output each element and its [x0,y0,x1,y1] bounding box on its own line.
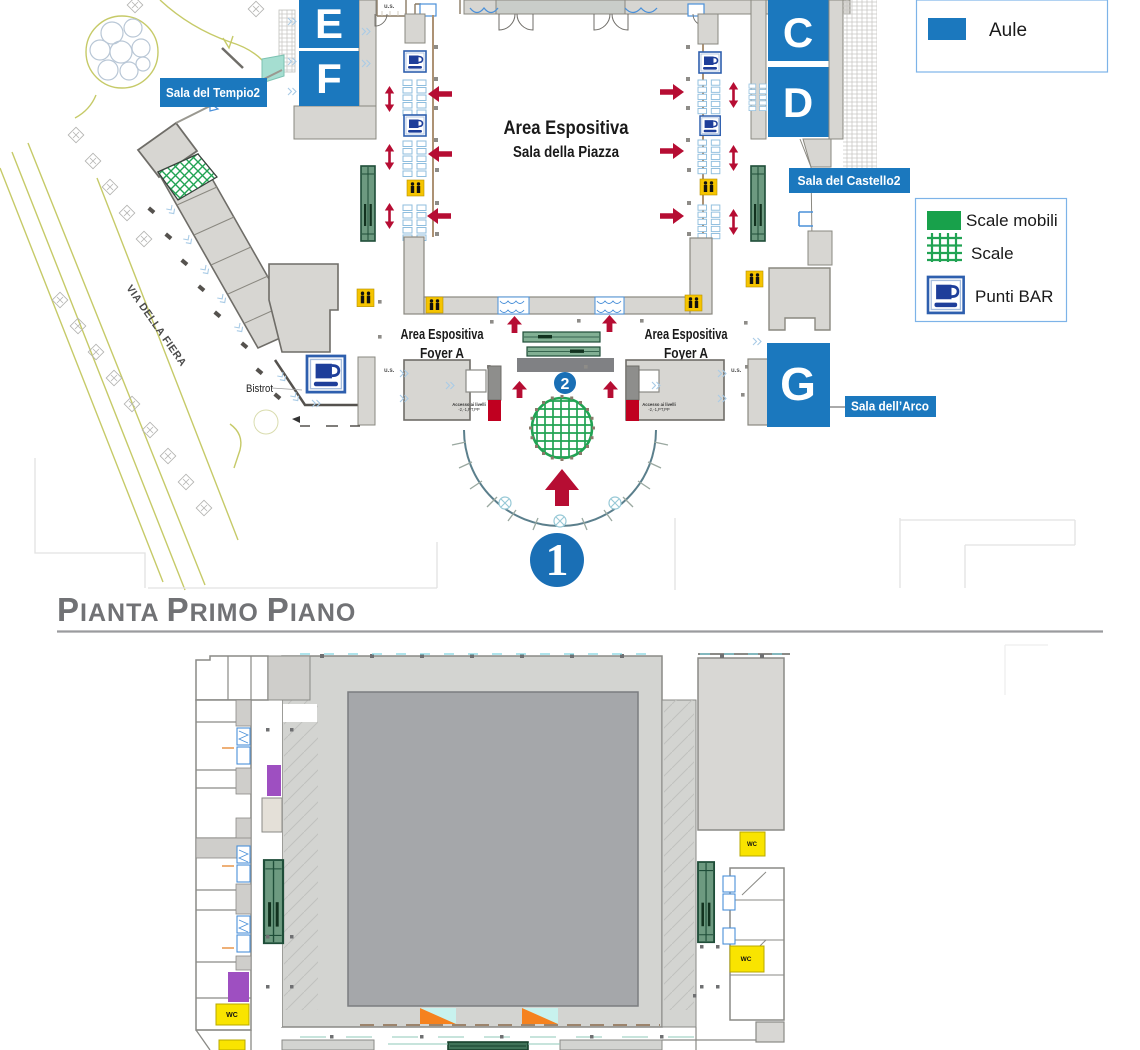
svg-text:Aule: Aule [989,20,1027,41]
svg-text:G: G [780,358,816,410]
svg-text:E: E [315,0,343,47]
svg-text:Punti BAR: Punti BAR [975,287,1053,306]
svg-text:u.s.: u.s. [731,368,742,374]
svg-text:u.s.: u.s. [384,4,395,10]
svg-text:Sala del Tempio2: Sala del Tempio2 [166,85,260,100]
svg-text:u.s.: u.s. [384,368,395,374]
svg-text:Area Espositiva: Area Espositiva [504,118,629,139]
svg-text:Bistrot: Bistrot [246,383,273,395]
svg-text:-2,-1,PT,PP: -2,-1,PT,PP [648,407,670,412]
svg-text:D: D [783,79,813,126]
svg-text:Scale mobili: Scale mobili [966,211,1058,230]
svg-text:WC: WC [747,842,758,848]
svg-text:Area Espositiva: Area Espositiva [401,326,484,343]
svg-text:Sala dell’Arco: Sala dell’Arco [851,400,929,414]
svg-text:Sala del Castello2: Sala del Castello2 [798,173,901,188]
svg-text:Scale: Scale [971,244,1014,263]
svg-text:WC: WC [741,956,752,963]
svg-text:1: 1 [546,534,569,585]
svg-text:F: F [316,55,342,102]
svg-text:Sala della Piazza: Sala della Piazza [513,144,619,161]
svg-text:-2,-1,PT,PP: -2,-1,PT,PP [458,407,480,412]
svg-text:WC: WC [226,1012,238,1019]
svg-text:Area Espositiva: Area Espositiva [645,326,728,343]
svg-text:C: C [783,9,813,56]
svg-text:2: 2 [561,376,570,393]
